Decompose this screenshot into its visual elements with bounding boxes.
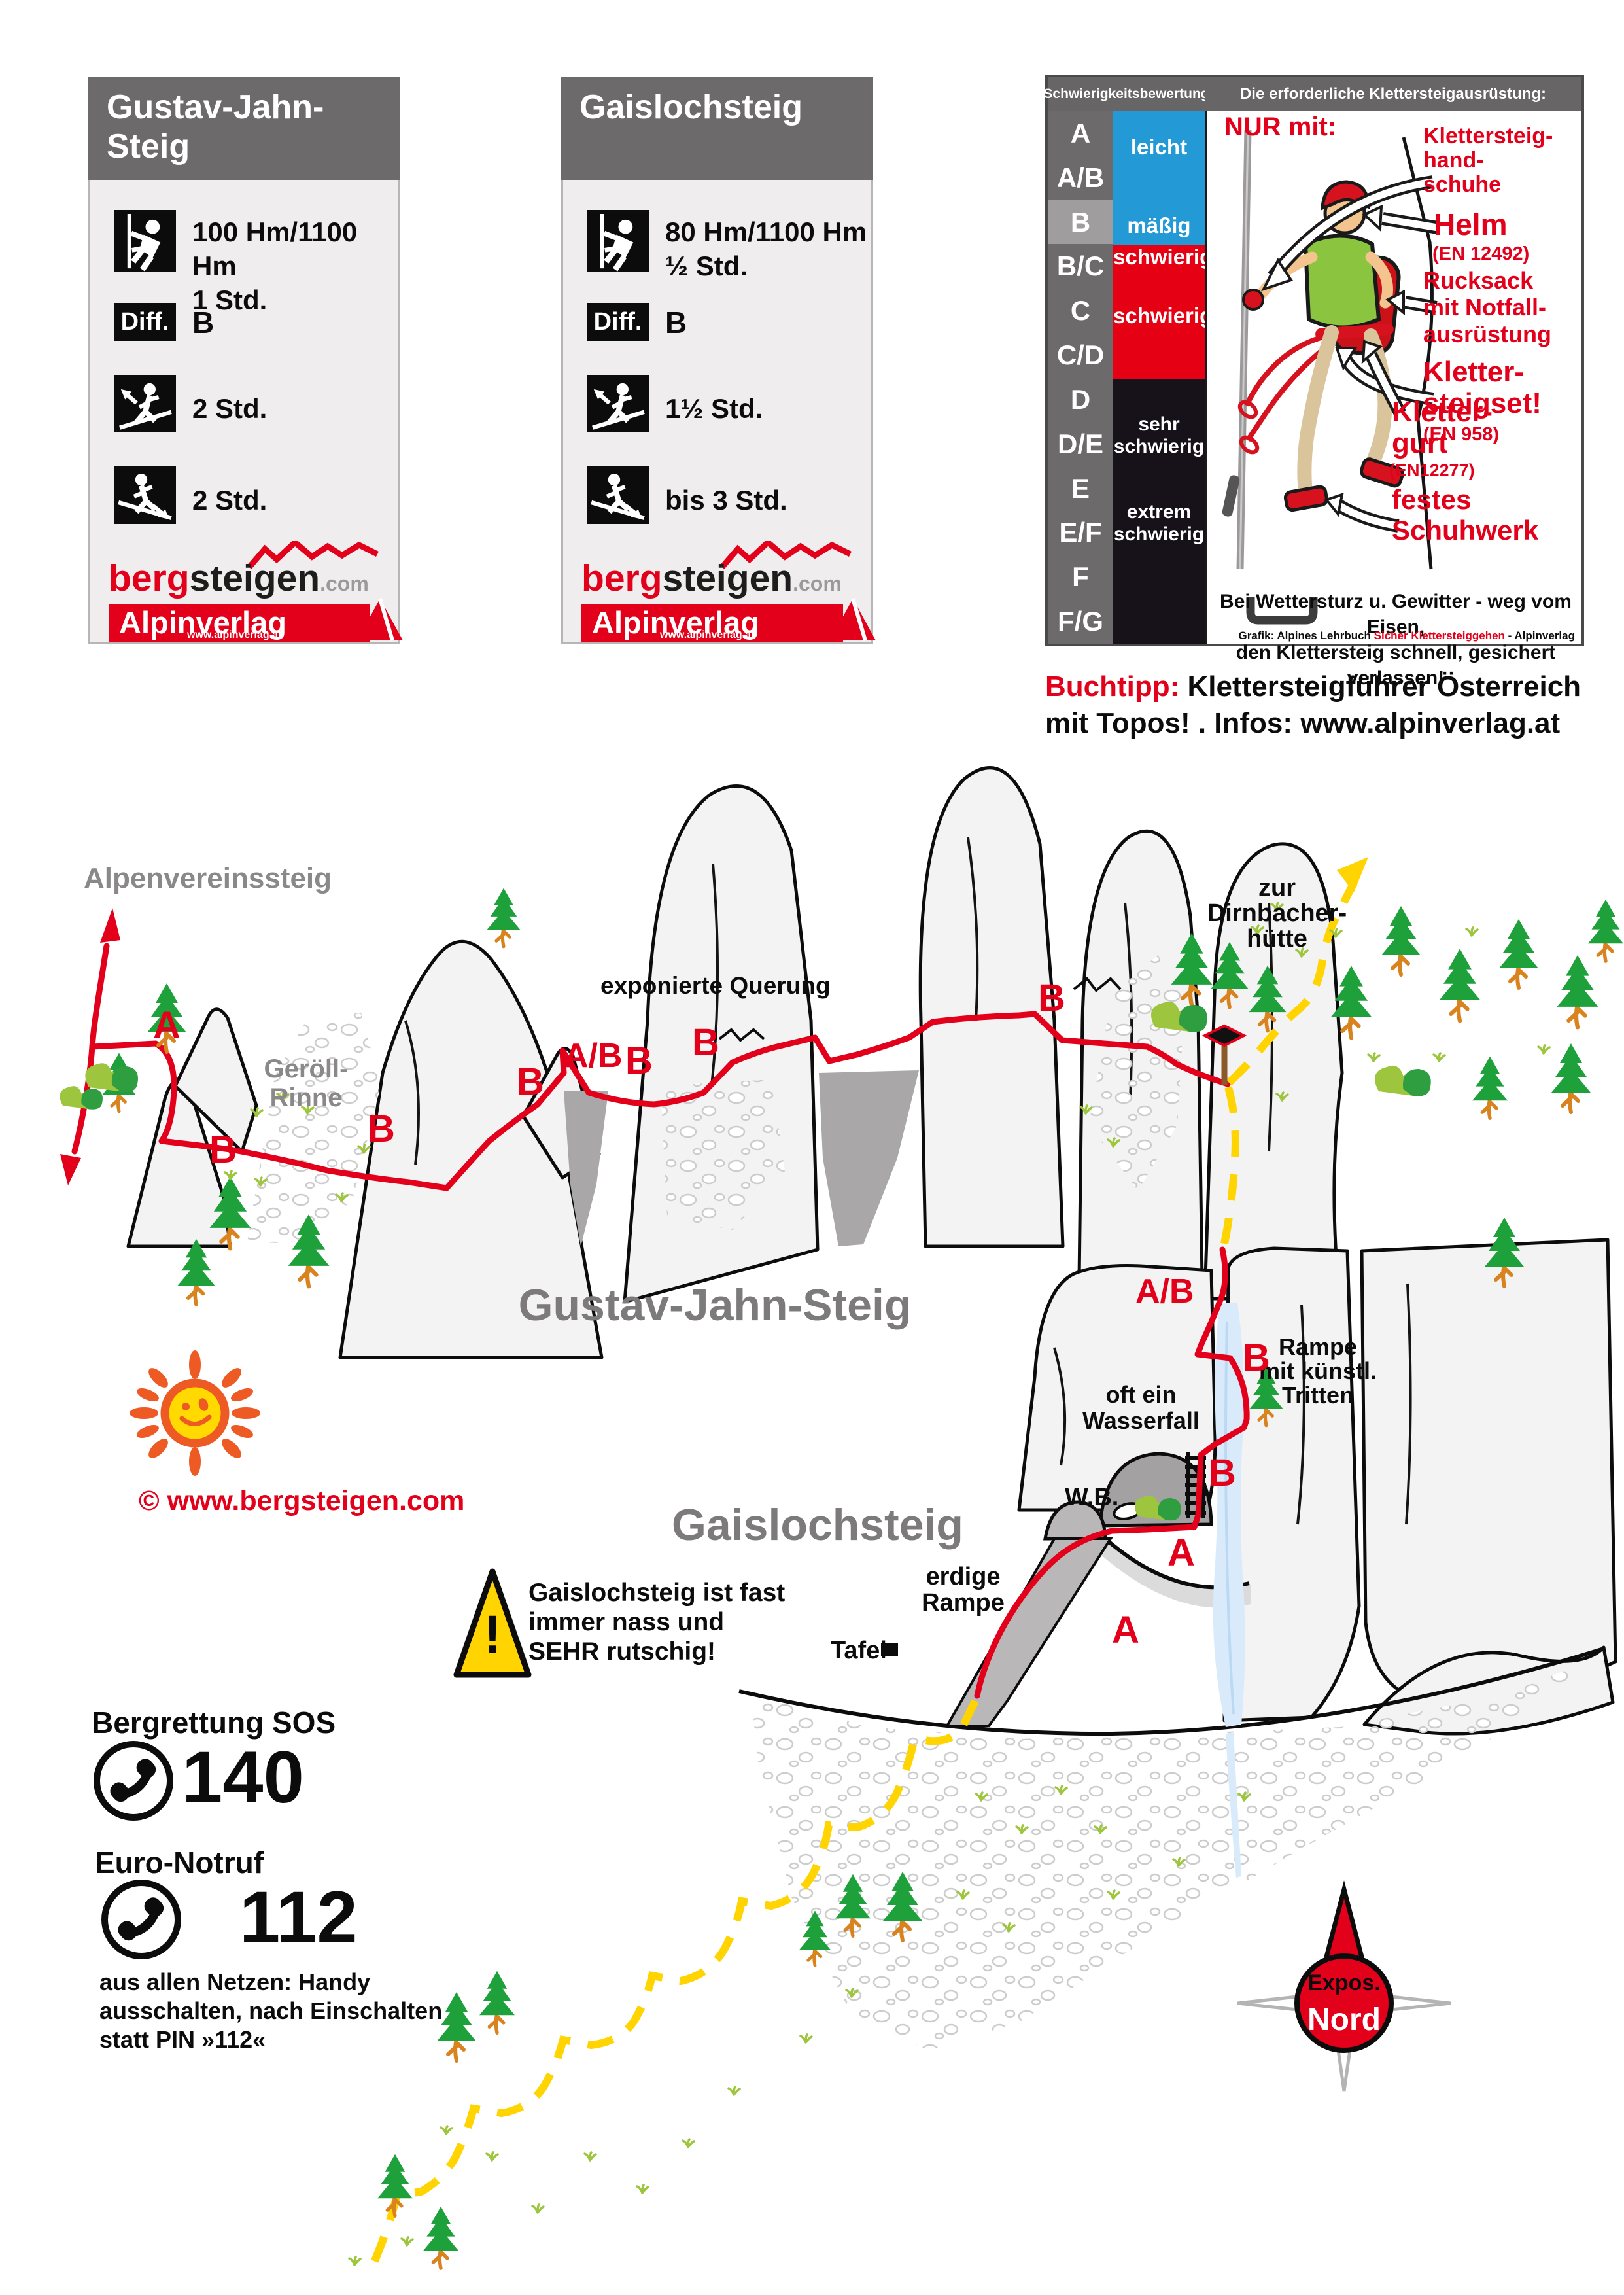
label-tafel: Tafel	[831, 1637, 887, 1665]
approach-time: 2 Std.	[192, 392, 267, 426]
scale-header: Schwierigkeitsbewertung	[1048, 77, 1205, 111]
grade-row: F	[1048, 555, 1113, 599]
equip-norm-gurt: (EN12277)	[1389, 461, 1475, 481]
shoe	[1285, 486, 1328, 511]
grade-row: F/G	[1048, 599, 1113, 644]
climb-stats: 80 Hm/1100 Hm ½ Std.	[665, 215, 867, 283]
bergsteigen-logo: bergsteigen.com	[581, 545, 863, 600]
grade-marker: B	[517, 1060, 544, 1104]
equip-label-schuhwerk: festes Schuhwerk	[1392, 484, 1538, 546]
alpinverlag-logo: Alpinverlag www.alpinverlag.at	[109, 604, 370, 642]
card-title: Gaislochsteig	[561, 77, 873, 180]
compass-expos-label: Expos.	[1302, 1971, 1387, 1996]
grade-marker: B	[1209, 1451, 1236, 1495]
grade-row: A	[1048, 111, 1113, 156]
route-arrow-down	[60, 1154, 81, 1185]
grade-marker: B	[209, 1128, 237, 1172]
grade-row: A/B	[1048, 156, 1113, 200]
climb-stats: 100 Hm/1100 Hm 1 Std.	[192, 215, 398, 317]
compass-nord-label: Nord	[1302, 2002, 1387, 2038]
descent-hiker-icon	[587, 466, 649, 524]
descent-hiker-icon	[114, 466, 176, 524]
grade-row: C/D	[1048, 333, 1113, 377]
via-ferrata-climber-icon	[587, 210, 649, 272]
map-title-gustav: Gustav-Jahn-Steig	[484, 1280, 946, 1331]
glove	[1243, 290, 1263, 309]
card-title: Gustav-Jahn- Steig	[88, 77, 400, 180]
grade-marker: B	[1243, 1336, 1270, 1380]
graphic-credit: Grafik: Alpines Lehrbuch Sicher Kletters…	[1214, 629, 1575, 642]
mountain-outlines	[128, 768, 1615, 1734]
warning-exclamation: !	[472, 1604, 513, 1666]
grade-column: A A/B B B/C C C/D D D/E E E/F F F/G	[1048, 111, 1113, 644]
grade-marker: A/B	[564, 1036, 623, 1076]
difficulty-value: B	[192, 306, 214, 340]
difficulty-value: B	[665, 306, 687, 340]
grade-row: C	[1048, 289, 1113, 333]
euro-notruf-number: 112	[239, 1875, 358, 1959]
route-arrow-up	[100, 908, 120, 943]
label-alpenvereinssteig: Alpenvereinssteig	[84, 862, 332, 895]
label-dirnbacherhuette: zur Dirnbacher- hütte	[1194, 875, 1360, 952]
buchtipp: Buchtipp: Klettersteigführer Österreich …	[1045, 669, 1581, 742]
grade-row: E/F	[1048, 510, 1113, 555]
grade-marker: B	[692, 1021, 719, 1064]
grade-marker: B	[1038, 976, 1065, 1020]
sun-icon	[130, 1350, 260, 1476]
grade-row-highlighted: B	[1048, 200, 1113, 245]
approach-time: 1½ Std.	[665, 392, 763, 426]
grade-marker: A	[1112, 1608, 1139, 1652]
approach-hiker-icon	[587, 375, 649, 432]
equip-label-handschuhe: Klettersteig- hand- schuhe	[1423, 124, 1553, 197]
emergency-note: aus allen Netzen: Handy ausschalten, nac…	[99, 1968, 442, 2054]
equip-norm-helm: (EN 12492)	[1432, 243, 1529, 265]
scale-band-extreme: sehr schwierig extrem schwierig	[1113, 379, 1205, 644]
phone-icon	[97, 1744, 170, 1817]
gray-gully	[819, 1070, 919, 1246]
shirt	[1305, 236, 1379, 328]
grade-marker: A	[153, 1004, 181, 1047]
grade-marker: A/B	[1135, 1272, 1194, 1311]
alpinverlag-mountain-icon	[829, 593, 877, 642]
scale-band-easy: leicht mäßig	[1113, 111, 1205, 245]
route-info-card-gustav: Gustav-Jahn- Steig 100 Hm/1100 Hm 1 Std.…	[88, 77, 400, 644]
label-exponierte-querung: exponierte Querung	[600, 972, 831, 1000]
copyright: © www.bergsteigen.com	[139, 1485, 464, 1517]
descent-time: 2 Std.	[192, 483, 267, 517]
hazard-text: Gaislochsteig ist fast immer nass und SE…	[528, 1578, 785, 1666]
equip-label-helm: Helm	[1434, 207, 1507, 242]
nur-mit-label: NUR mit:	[1224, 113, 1336, 142]
label-wb: W.B.	[1065, 1484, 1118, 1512]
grade-row: B/C	[1048, 244, 1113, 289]
grade-row: D	[1048, 377, 1113, 422]
topo-poster: Gustav-Jahn- Steig 100 Hm/1100 Hm 1 Std.…	[0, 0, 1624, 2295]
via-ferrata-climber-icon	[114, 210, 176, 272]
sos-number: 140	[182, 1735, 304, 1819]
equip-label-gurt: Kletter- gurt	[1392, 396, 1493, 459]
bergsteigen-logo: bergsteigen.com	[109, 545, 390, 600]
route-info-card-gaisloch: Gaislochsteig 80 Hm/1100 Hm ½ Std. Diff.…	[561, 77, 873, 644]
euro-notruf-title: Euro-Notruf	[95, 1845, 264, 1880]
equipment-header: Die erforderliche Klettersteigausrüstung…	[1205, 77, 1581, 111]
grade-marker: B	[625, 1039, 653, 1083]
alpinverlag-logo: Alpinverlag www.alpinverlag.at	[581, 604, 843, 642]
alpinverlag-mountain-icon	[356, 593, 404, 642]
map-title-gaisloch: Gaislochsteig	[621, 1499, 1014, 1550]
equip-label-rucksack: Rucksack mit Notfall- ausrüstung	[1423, 267, 1551, 347]
grade-marker: A	[1167, 1531, 1195, 1575]
difficulty-box: Diff.	[114, 303, 176, 341]
phone-icon	[105, 1883, 178, 1956]
label-erdige-rampe: erdige Rampe	[906, 1564, 1020, 1616]
approach-hiker-icon	[114, 375, 176, 432]
grade-marker: B	[368, 1107, 395, 1151]
grade-row: D/E	[1048, 422, 1113, 466]
scale-color-column: leicht mäßig schwierig schwierig sehr sc…	[1113, 111, 1205, 644]
scale-band-hard: schwierig schwierig	[1113, 245, 1205, 379]
label-geroell-rinne: Geröll- Rinne	[254, 1055, 358, 1112]
difficulty-box: Diff.	[587, 303, 649, 341]
descent-time: bis 3 Std.	[665, 483, 787, 517]
tafel-marker	[881, 1643, 898, 1656]
label-wasserfall: oft ein Wasserfall	[1080, 1382, 1201, 1434]
grade-row: E	[1048, 466, 1113, 511]
